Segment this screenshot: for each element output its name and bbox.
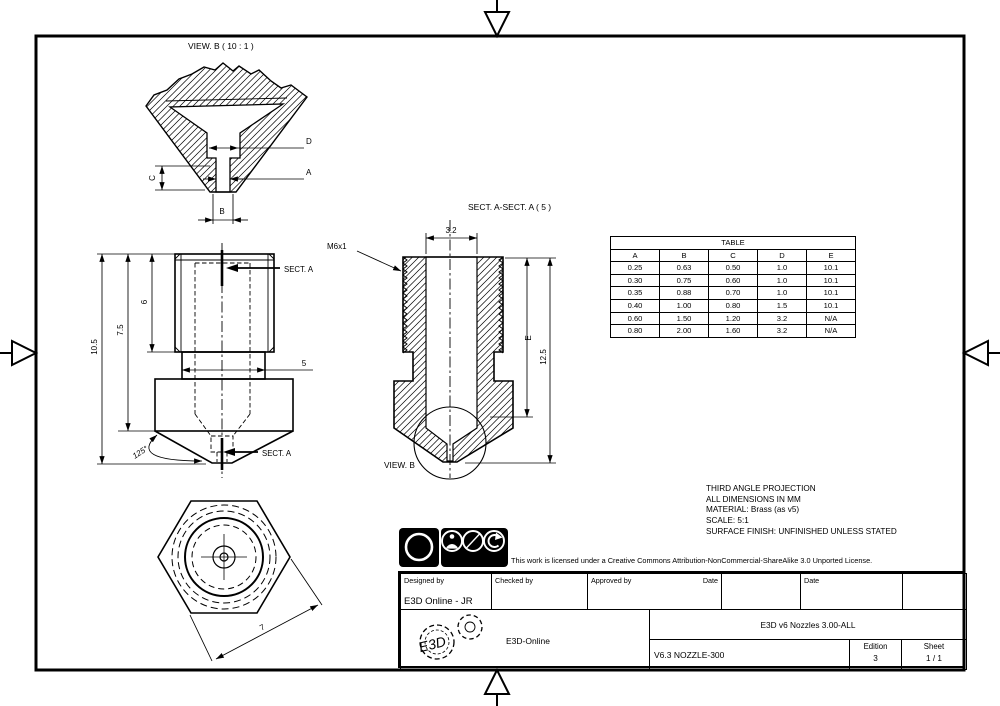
designed-by-cell: Designed by E3D Online - JR	[400, 573, 492, 610]
table-row: 0.401.000.801.510.1	[611, 299, 856, 312]
note-line: SCALE: 5:1	[706, 516, 897, 527]
designed-by-label: Designed by	[404, 576, 488, 585]
end-view-crosshair	[201, 534, 247, 580]
col-header: A	[611, 249, 660, 262]
drawing-title: E3D v6 Nozzles 3.00-ALL	[760, 620, 855, 630]
dim-label-thread: 6	[140, 299, 149, 304]
dim-label-hex: 7	[258, 622, 267, 632]
sheet-value: 1 / 1	[926, 654, 942, 663]
section-cut-marks	[222, 250, 280, 470]
dim-label-to-hex: 7.5	[116, 324, 125, 336]
cc-letters: cc	[413, 542, 425, 554]
part-number-cell: V6.3 NOZZLE-300	[649, 639, 850, 670]
centering-mark-top	[485, 0, 509, 36]
dim-label-neck: 5	[302, 359, 307, 368]
company-name: E3D-Online	[506, 636, 550, 646]
sa-label: SA	[490, 559, 499, 566]
logo-text: E3D	[417, 633, 447, 655]
dim-label-d: D	[306, 137, 312, 146]
col-header: E	[807, 249, 856, 262]
dim-label-overall: 10.5	[90, 339, 99, 355]
approved-by-label: Approved by	[591, 576, 631, 607]
drawing-notes: THIRD ANGLE PROJECTION ALL DIMENSIONS IN…	[706, 484, 897, 538]
end-view: 7	[158, 501, 322, 661]
table-header-row: A B C D E	[611, 249, 856, 262]
front-view: 10.5 7.5 6 5 125° SECT. A SECT. A	[90, 243, 314, 478]
dim-label-c: C	[148, 175, 157, 181]
edition-value: 3	[873, 654, 878, 663]
col-header: B	[660, 249, 709, 262]
detail-b-ref-label: VIEW. B	[384, 460, 415, 470]
dim-label-a: A	[306, 168, 312, 177]
date-label: Date	[703, 576, 718, 607]
front-dimensions	[97, 254, 313, 464]
section-bore-outline	[426, 257, 477, 461]
note-line: ALL DIMENSIONS IN MM	[706, 495, 897, 506]
thread-callout: M6x1	[327, 242, 347, 251]
checked-by-cell: Checked by	[491, 573, 588, 610]
centering-mark-bottom	[485, 670, 509, 706]
table-row: 0.300.750.601.010.1	[611, 274, 856, 287]
drawing-sheet: { "sheet": { "view_b_detail": { "title":…	[0, 0, 1000, 706]
table-row: 0.802.001.603.2N/A	[611, 325, 856, 338]
col-header: C	[709, 249, 758, 262]
nc-label: NC	[469, 559, 478, 566]
edition-cell: Edition 3	[849, 639, 902, 670]
edition-label: Edition	[864, 642, 888, 651]
centering-mark-left	[0, 341, 36, 365]
note-line: MATERIAL: Brass (as v5)	[706, 505, 897, 516]
part-number: V6.3 NOZZLE-300	[654, 650, 724, 660]
section-view-title: SECT. A-SECT. A ( 5 )	[468, 202, 551, 212]
dim-label-e: E	[524, 335, 533, 340]
centering-mark-right	[964, 341, 1000, 365]
front-hidden-lines	[195, 263, 250, 462]
dim-label-angle: 125°	[131, 444, 150, 461]
front-outline	[155, 254, 293, 463]
date-label: Date	[804, 576, 899, 585]
empty-cell	[902, 573, 967, 610]
drawing-title-cell: E3D v6 Nozzles 3.00-ALL	[649, 609, 967, 640]
designed-by-value: E3D Online - JR	[404, 596, 473, 607]
detail-view-title: VIEW. B ( 10 : 1 )	[188, 41, 254, 51]
sheet-cell: Sheet 1 / 1	[901, 639, 967, 670]
empty-cell	[721, 573, 801, 610]
table-title: TABLE	[611, 237, 856, 250]
section-dimensions	[357, 233, 556, 463]
table-row: 0.250.630.501.010.1	[611, 262, 856, 275]
company-cell: E3D E3D-Online	[400, 609, 650, 670]
date-cell: Date	[800, 573, 903, 610]
license-statement: This work is licensed under a Creative C…	[511, 556, 872, 565]
table-row: 0.601.501.203.2N/A	[611, 312, 856, 325]
section-hatching	[394, 257, 513, 462]
section-label-bottom: SECT. A	[262, 449, 292, 458]
table-row: 0.350.880.701.010.1	[611, 287, 856, 300]
note-line: SURFACE FINISH: UNFINISHED UNLESS STATED	[706, 527, 897, 538]
cc-license-badge: cc $ BY NC SA	[399, 528, 508, 567]
detail-view-b: VIEW. B ( 10 : 1 ) D A C B	[146, 41, 312, 224]
nozzle-spec-table: TABLE A B C D E 0.250.630.501.010.1 0.30…	[610, 236, 856, 338]
section-label-top: SECT. A	[284, 265, 314, 274]
checked-by-label: Checked by	[495, 576, 584, 585]
approved-by-cell: Approved by Date	[587, 573, 722, 610]
end-view-dimension	[190, 559, 322, 661]
section-view: SECT. A-SECT. A ( 5 ) VIEW. B 3.2 M6x1 E…	[327, 202, 556, 479]
col-header: D	[758, 249, 807, 262]
by-label: BY	[448, 559, 457, 566]
dim-label-bore: 3.2	[445, 226, 457, 235]
sheet-label: Sheet	[924, 642, 944, 651]
dim-label-b: B	[219, 207, 224, 216]
note-line: THIRD ANGLE PROJECTION	[706, 484, 897, 495]
dim-label-height: 12.5	[539, 349, 548, 365]
title-block: Designed by E3D Online - JR Checked by A…	[398, 571, 965, 668]
detail-hatching	[146, 63, 307, 192]
e3d-gear-logo: E3D	[403, 611, 499, 667]
